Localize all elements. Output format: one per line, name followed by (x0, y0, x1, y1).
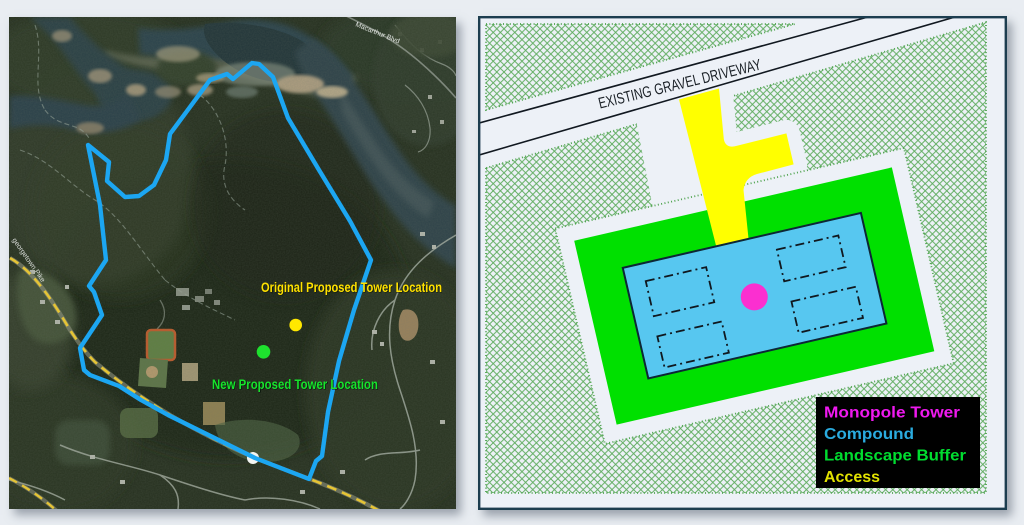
svg-text:Original Proposed Tower Locati: Original Proposed Tower Location (261, 280, 442, 295)
svg-text:Compound: Compound (824, 426, 914, 443)
svg-text:Landscape Buffer: Landscape Buffer (824, 448, 966, 465)
svg-text:New Proposed Tower Location: New Proposed Tower Location (212, 377, 378, 392)
svg-text:Monopole Tower: Monopole Tower (824, 405, 960, 422)
svg-text:Access: Access (824, 469, 880, 486)
